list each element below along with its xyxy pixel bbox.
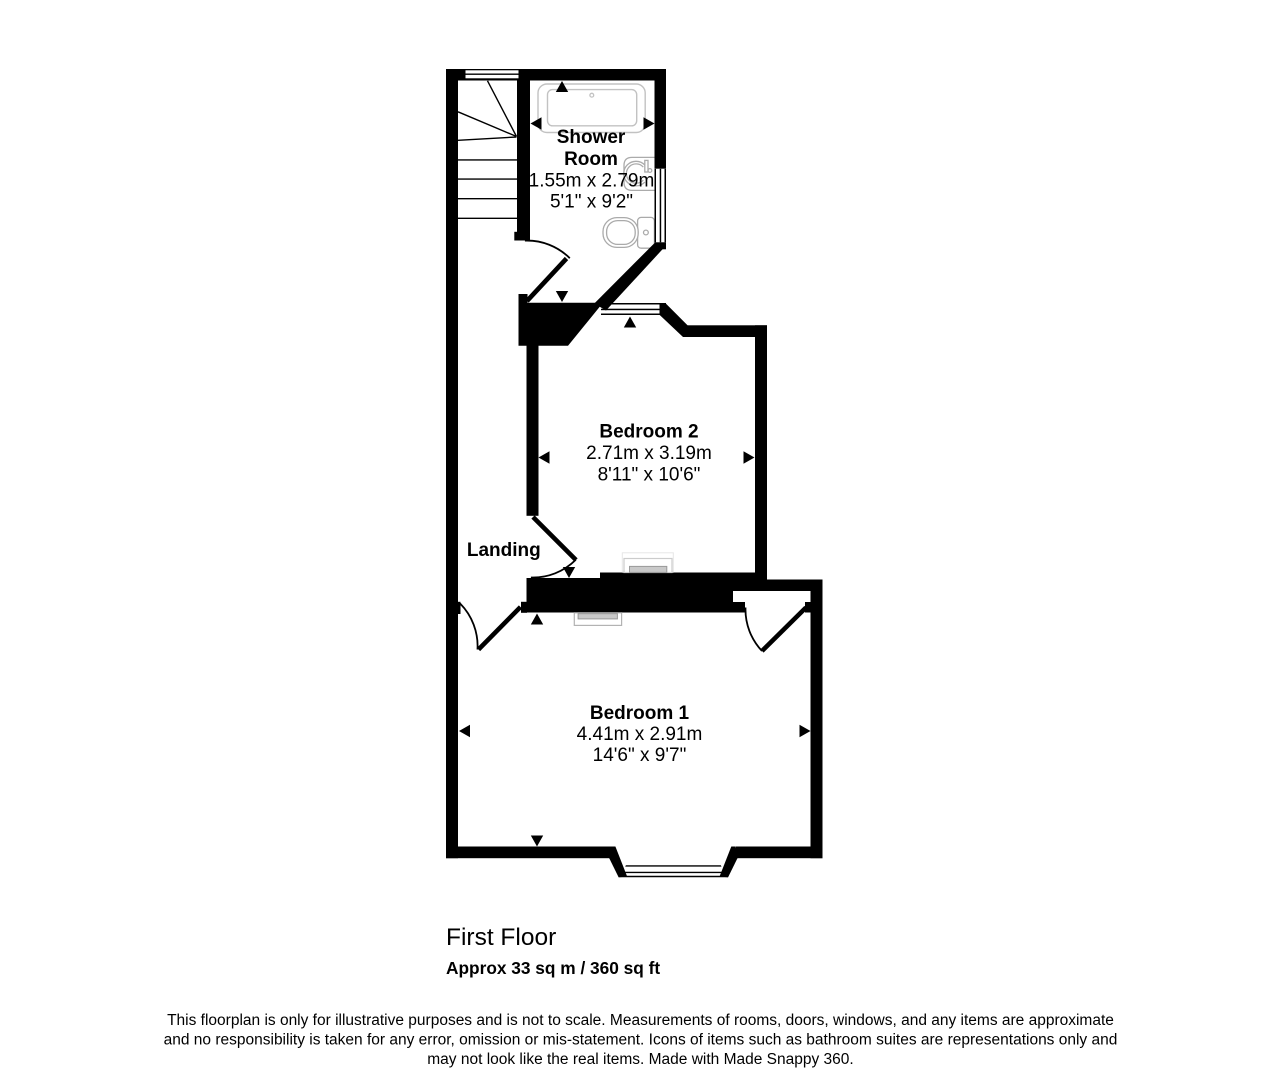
svg-text:Approx 33 sq m / 360 sq ft: Approx 33 sq m / 360 sq ft: [446, 958, 660, 978]
svg-text:may not look like the real ite: may not look like the real items. Made w…: [427, 1051, 853, 1068]
svg-text:First Floor: First Floor: [446, 924, 556, 951]
svg-text:Bedroom 2: Bedroom 2: [599, 422, 698, 443]
svg-text:8'11" x 10'6": 8'11" x 10'6": [598, 465, 701, 486]
svg-text:1.55m x 2.79m: 1.55m x 2.79m: [529, 170, 655, 191]
svg-text:and no responsibility is taken: and no responsibility is taken for any e…: [164, 1032, 1118, 1049]
svg-text:5'1" x 9'2": 5'1" x 9'2": [550, 192, 633, 213]
svg-text:Room: Room: [564, 149, 618, 170]
svg-text:4.41m x 2.91m: 4.41m x 2.91m: [577, 724, 703, 745]
svg-text:Bedroom 1: Bedroom 1: [590, 703, 690, 724]
svg-text:2.71m x 3.19m: 2.71m x 3.19m: [586, 443, 712, 464]
svg-text:Shower: Shower: [557, 127, 626, 148]
svg-text:Landing: Landing: [467, 540, 541, 561]
svg-text:This floorplan is only for ill: This floorplan is only for illustrative …: [167, 1012, 1114, 1029]
svg-text:14'6" x 9'7": 14'6" x 9'7": [593, 745, 687, 766]
